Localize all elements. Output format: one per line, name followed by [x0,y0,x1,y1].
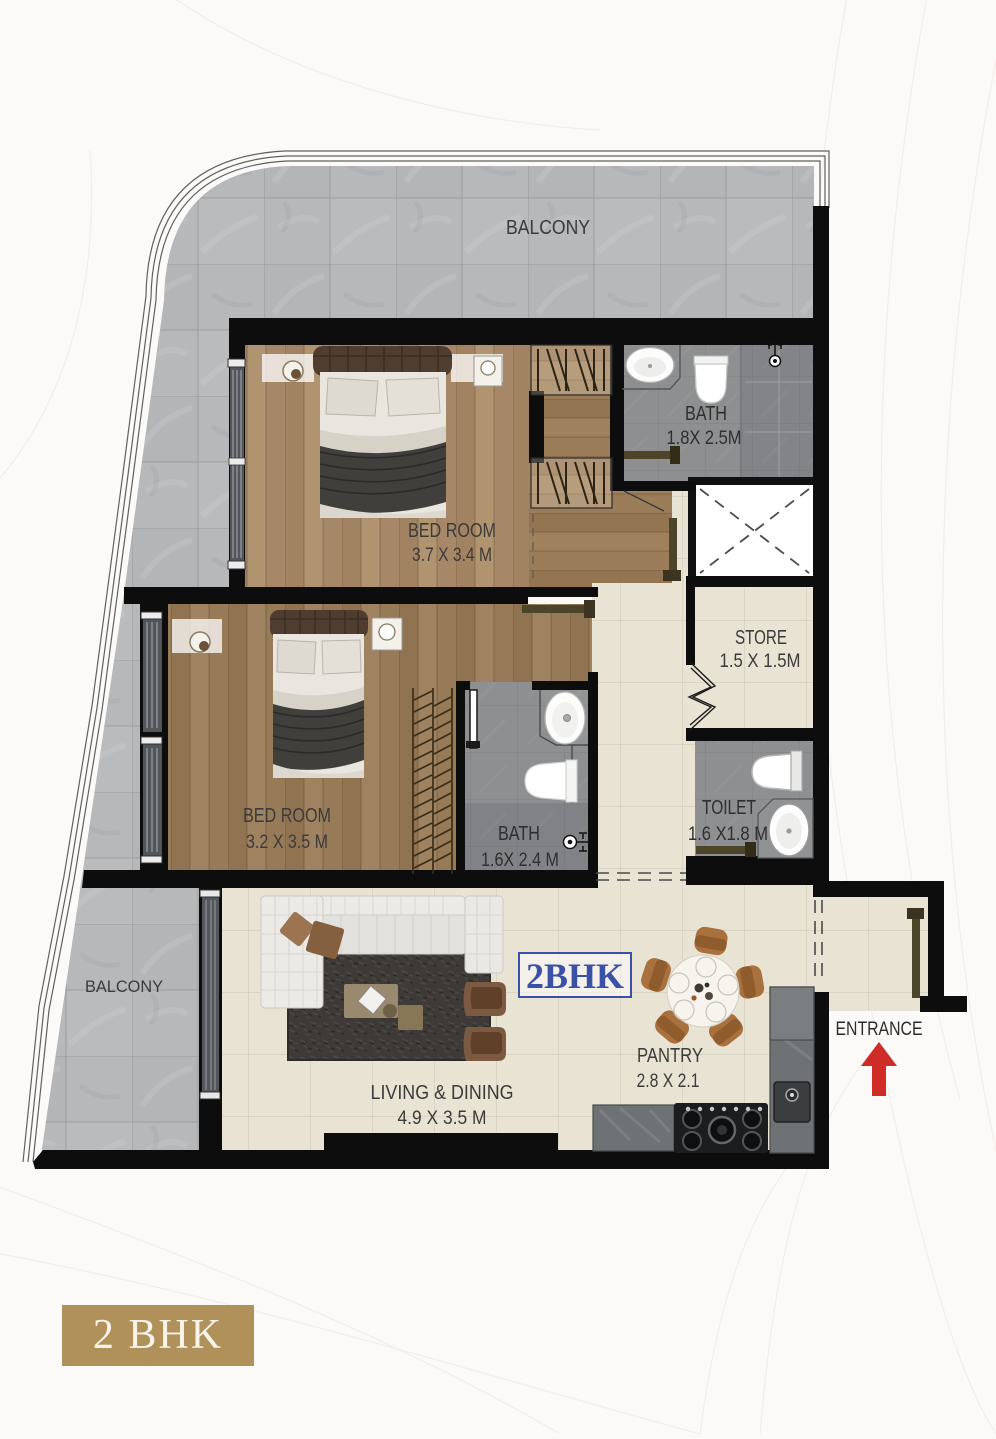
svg-text:STORE: STORE [735,627,787,649]
svg-text:BALCONY: BALCONY [85,977,163,996]
svg-text:1.6 X1.8 M: 1.6 X1.8 M [688,824,768,845]
svg-text:BED ROOM: BED ROOM [243,805,331,827]
svg-text:2 BHK: 2 BHK [93,1312,223,1358]
svg-text:1.5 X 1.5M: 1.5 X 1.5M [720,651,801,672]
svg-text:BALCONY: BALCONY [506,217,590,239]
svg-text:2BHK: 2BHK [526,956,624,996]
svg-text:ENTRANCE: ENTRANCE [836,1019,923,1040]
svg-text:3.2 X 3.5 M: 3.2 X 3.5 M [246,832,328,853]
svg-text:4.9 X 3.5 M: 4.9 X 3.5 M [398,1108,487,1129]
svg-text:BATH: BATH [498,823,540,845]
svg-text:1.6X 2.4 M: 1.6X 2.4 M [481,850,559,871]
svg-text:LIVING & DINING: LIVING & DINING [371,1082,514,1104]
svg-text:BATH: BATH [685,403,727,425]
svg-text:1.8X 2.5M: 1.8X 2.5M [667,428,742,449]
svg-text:2.8 X 2.1: 2.8 X 2.1 [637,1071,700,1092]
svg-text:TOILET: TOILET [702,797,756,819]
svg-text:3.7 X 3.4 M: 3.7 X 3.4 M [412,545,492,566]
svg-text:PANTRY: PANTRY [637,1045,703,1067]
svg-text:BED ROOM: BED ROOM [408,520,496,542]
